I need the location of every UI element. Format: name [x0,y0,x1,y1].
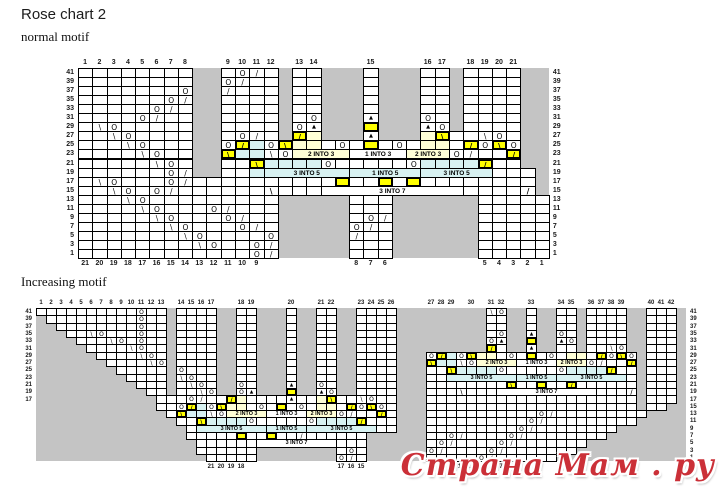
grid-cell [206,249,221,259]
row-number-left: 25 [50,141,74,149]
row-number-left: 9 [50,214,74,222]
grid-cell [520,249,535,259]
column-number-bottom: 6 [374,260,396,268]
into-band: 2 INTO 3 [556,359,587,367]
row-number-left: 13 [50,196,74,204]
grid-cell [78,249,93,259]
into-band: 3 INTO 7 [496,388,597,396]
grid-cell [386,425,397,433]
grid-cell [356,454,367,462]
row-number-right: 31 [553,114,577,122]
watermark: Страна Мам . ру [401,448,715,483]
row-number-left: 41 [50,69,74,77]
row-number-left: 19 [50,169,74,177]
row-number-right: 27 [553,132,577,140]
row-number-left: 33 [50,105,74,113]
row-number-left: 15 [50,187,74,195]
grid-cell [535,249,550,259]
grid-cell [463,186,478,196]
column-number-top: 32 [492,299,510,307]
row-number-right: 3 [553,241,577,249]
into-band: 1 INTO 3 [516,359,557,367]
column-number-top: 19 [242,299,260,307]
page-title: Rose chart 2 [21,6,106,23]
grid-cell [596,432,607,440]
row-number-right: 23 [553,150,577,158]
row-number-left: 5 [50,232,74,240]
column-number-top: 26 [382,299,400,307]
grid-cell [121,249,136,259]
grid-cell [363,249,378,259]
row-number-right: 33 [553,105,577,113]
row-number-right: 19 [553,169,577,177]
into-band: 3 INTO 7 [321,186,465,196]
column-number-bottom: 9 [245,260,267,268]
into-band: 3 INTO 5 [446,374,517,382]
column-number-top: 13 [152,299,170,307]
column-number-top: 17 [202,299,220,307]
into-band: 2 INTO 3 [292,149,350,159]
into-band: 3 INTO 5 [264,168,351,178]
into-band: 3 INTO 5 [556,374,627,382]
column-number-top: 42 [662,299,680,307]
column-number-top: 29 [442,299,460,307]
grid-cell [636,410,647,418]
row-number-right: 11 [553,205,577,213]
stitch-symbol-cell: / [264,249,279,259]
grid-cell [349,249,364,259]
grid-cell [292,186,307,196]
grid-cell [278,186,293,196]
column-number-top: 8 [174,59,196,67]
normal-motif-label: normal motif [21,29,89,45]
grid-cell [656,403,667,411]
column-number-bottom: 1 [531,260,553,268]
row-number-left: 11 [50,205,74,213]
grid-cell [492,249,507,259]
column-number-top: 14 [302,59,324,67]
row-number-left: 17 [8,396,32,404]
knitting-chart-page: Rose chart 2 normal motif Increasing mot… [0,0,720,489]
grid-cell [221,249,236,259]
grid-cell [246,454,257,462]
grid-cell [666,395,677,403]
grid-cell [164,249,179,259]
column-number-top: 30 [462,299,480,307]
row-number-right: 15 [553,187,577,195]
into-band: 2 INTO 3 [406,149,450,159]
column-number-top: 35 [562,299,580,307]
increasing-motif-label: Increasing motif [21,274,107,290]
into-band: 2 INTO 3 [306,410,337,418]
grid-cell [576,439,587,447]
row-number-right: 21 [553,160,577,168]
column-number-bottom: 15 [352,463,370,471]
row-number-right: 13 [553,196,577,204]
column-number-top: 20 [282,299,300,307]
row-number-right: 25 [553,141,577,149]
grid-cell [92,249,107,259]
column-number-top: 39 [612,299,630,307]
row-number-left: 35 [50,96,74,104]
column-number-bottom: 18 [232,463,250,471]
row-number-right: 9 [553,214,577,222]
into-band: 1 INTO 5 [266,425,307,433]
into-band: 2 INTO 3 [226,410,267,418]
column-number-top: 12 [260,59,282,67]
grid-cell [107,249,122,259]
row-number-left: 23 [50,150,74,158]
into-band: 1 INTO 3 [349,149,407,159]
row-number-left: 37 [50,87,74,95]
into-band: 3 INTO 5 [420,168,492,178]
row-number-left: 1 [50,250,74,258]
column-number-top: 21 [502,59,524,67]
row-number-left: 27 [50,132,74,140]
column-number-top: 15 [359,59,381,67]
grid-cell [606,425,617,433]
into-band: 1 INTO 5 [349,168,421,178]
stitch-symbol-cell: O [249,249,264,259]
row-number-right: 29 [553,123,577,131]
grid-cell [192,249,207,259]
into-band: 3 INTO 7 [256,439,337,447]
row-number-left: 31 [50,114,74,122]
grid-cell [626,417,637,425]
row-number-right: 37 [553,87,577,95]
row-number-right: 1 [553,250,577,258]
grid-cell [378,249,393,259]
grid-cell [178,249,193,259]
column-number-top: 17 [431,59,453,67]
row-number-left: 17 [50,178,74,186]
row-number-right: 5 [553,232,577,240]
grid-cell [135,249,150,259]
grid-cell [506,249,521,259]
column-number-top: 22 [322,299,340,307]
column-number-top: 33 [522,299,540,307]
row-number-right: 41 [553,69,577,77]
row-number-right: 17 [553,178,577,186]
into-band: 2 INTO 3 [476,359,517,367]
row-number-left: 21 [50,160,74,168]
into-band: 1 INTO 3 [266,410,307,418]
row-number-left: 3 [50,241,74,249]
into-band: 3 INTO 5 [306,425,377,433]
row-number-right: 35 [553,96,577,104]
row-number-left: 7 [50,223,74,231]
row-number-left: 39 [50,78,74,86]
into-band: 3 INTO 5 [196,425,267,433]
grid-cell [306,186,321,196]
grid-cell [149,249,164,259]
row-number-right: 39 [553,78,577,86]
row-number-right: 7 [553,223,577,231]
row-number-left: 29 [50,123,74,131]
into-band: 1 INTO 5 [516,374,557,382]
grid-cell [478,249,493,259]
grid-cell [235,249,250,259]
